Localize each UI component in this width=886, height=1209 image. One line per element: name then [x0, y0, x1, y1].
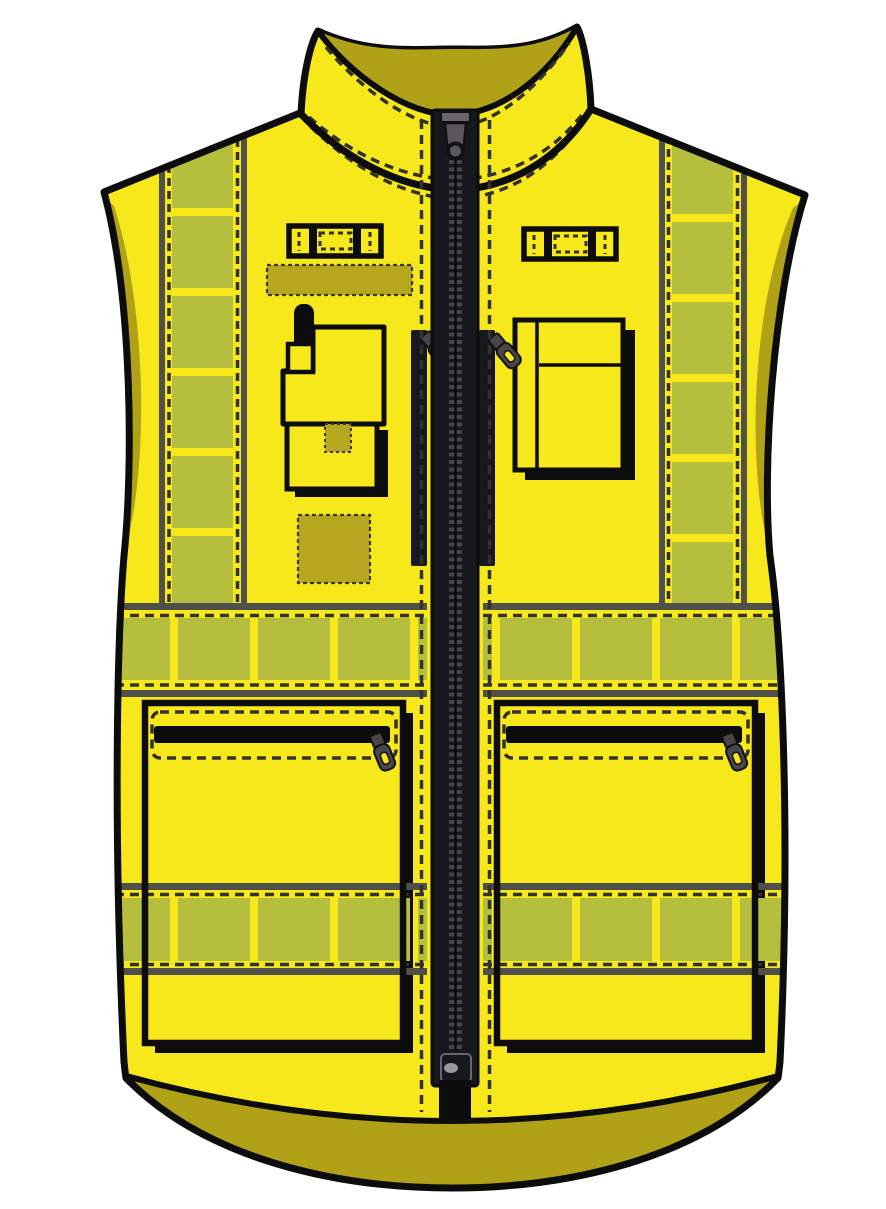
id-badge-strip — [267, 265, 412, 295]
vest-illustration: High-visibility safety vest — technical … — [0, 0, 886, 1209]
right-chest-zip — [479, 330, 495, 566]
left-loop-tab — [289, 224, 381, 258]
radio-pocket-shadow — [379, 430, 388, 496]
hook-loop-tab — [325, 424, 351, 452]
radio-pocket — [283, 304, 388, 497]
placket-bottom — [439, 1080, 471, 1120]
left-lower-pocket — [145, 703, 413, 1053]
document-pocket-body — [515, 320, 623, 470]
right-lower-pocket — [497, 703, 765, 1053]
left-chest-zip — [411, 330, 427, 566]
document-pocket-shadow — [625, 330, 635, 478]
pocket-zip — [506, 726, 742, 743]
main-zipper — [432, 110, 478, 1120]
zipper-top-stop — [441, 112, 470, 122]
document-pocket — [515, 320, 635, 480]
vest-svg: High-visibility safety vest — technical … — [0, 0, 886, 1209]
zipper-bottom-stop-pin — [444, 1063, 458, 1073]
pocket-body — [145, 703, 403, 1043]
antenna-holder — [288, 344, 313, 372]
pocket-zip — [154, 726, 390, 743]
zipper-slider-ring — [448, 144, 463, 159]
right-loop-tab — [524, 227, 616, 261]
hook-loop-square-patch — [298, 515, 370, 583]
pocket-body — [497, 703, 755, 1043]
